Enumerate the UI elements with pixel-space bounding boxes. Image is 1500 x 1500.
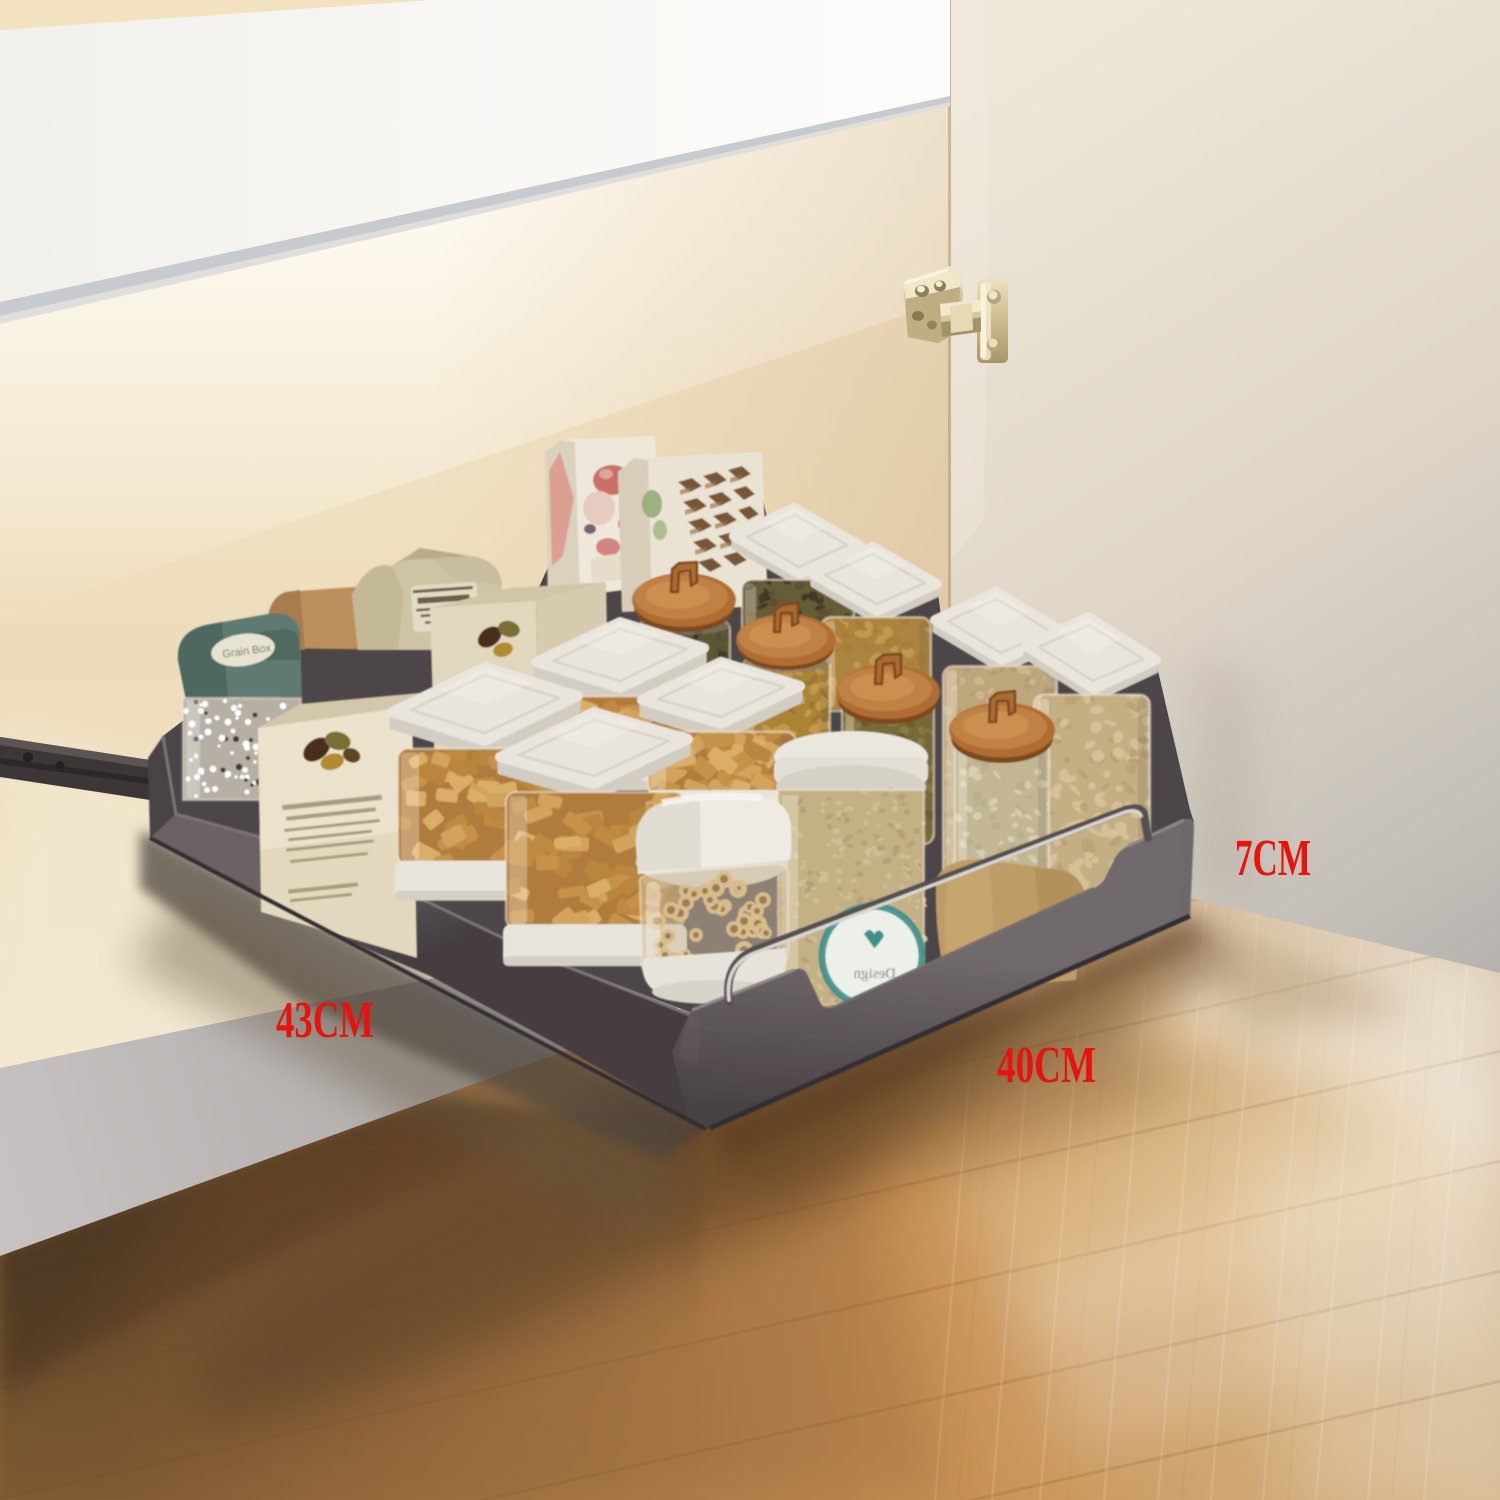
svg-text:40CM: 40CM (997, 1037, 1096, 1094)
svg-text:43CM: 43CM (276, 992, 374, 1049)
svg-text:Design: Design (853, 966, 896, 982)
svg-text:7CM: 7CM (1235, 830, 1311, 887)
